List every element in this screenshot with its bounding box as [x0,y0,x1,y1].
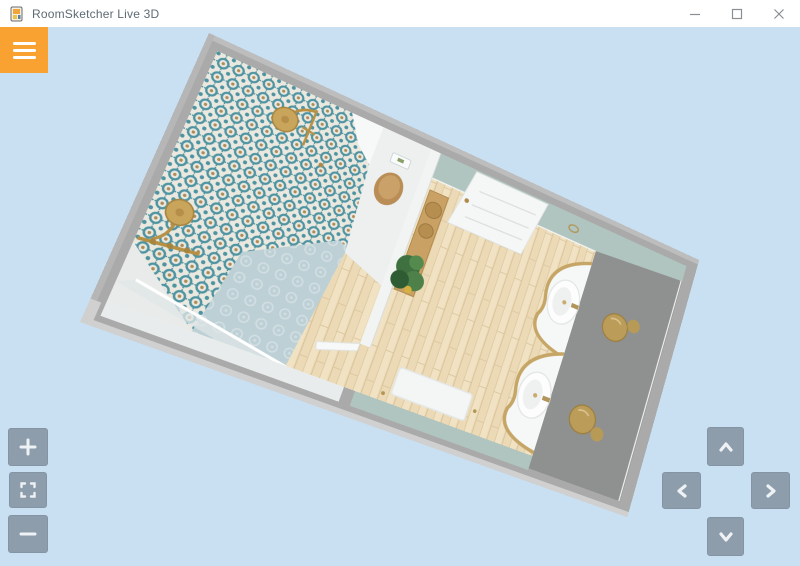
minus-icon [19,525,37,543]
pan-left-button[interactable] [662,472,701,509]
pan-up-button[interactable] [707,427,744,466]
roomsketcher-logo-icon [9,6,25,22]
chevron-down-icon [717,528,735,546]
pan-right-button[interactable] [751,472,790,509]
chevron-up-icon [717,438,735,456]
main-menu-button[interactable] [0,27,48,73]
hamburger-menu-icon [13,42,36,59]
maximize-icon [731,8,743,20]
chevron-right-icon [762,482,780,500]
minimize-button[interactable] [674,0,716,27]
chevron-left-icon [673,482,691,500]
zoom-in-button[interactable] [8,428,48,466]
plus-icon [19,438,37,456]
floorplan-svg [80,33,699,517]
fit-screen-icon [20,482,36,498]
minimize-icon [689,8,701,20]
roomsketcher-window: RoomSketcher Live 3D [0,0,800,566]
fit-view-button[interactable] [9,472,47,508]
pan-down-button[interactable] [707,517,744,556]
close-icon [773,8,785,20]
floorplan-plane [80,33,699,517]
close-button[interactable] [758,0,800,27]
window-title: RoomSketcher Live 3D [32,7,159,21]
window-controls [674,0,800,27]
zoom-out-button[interactable] [8,515,48,553]
titlebar[interactable]: RoomSketcher Live 3D [0,0,800,27]
maximize-button[interactable] [716,0,758,27]
